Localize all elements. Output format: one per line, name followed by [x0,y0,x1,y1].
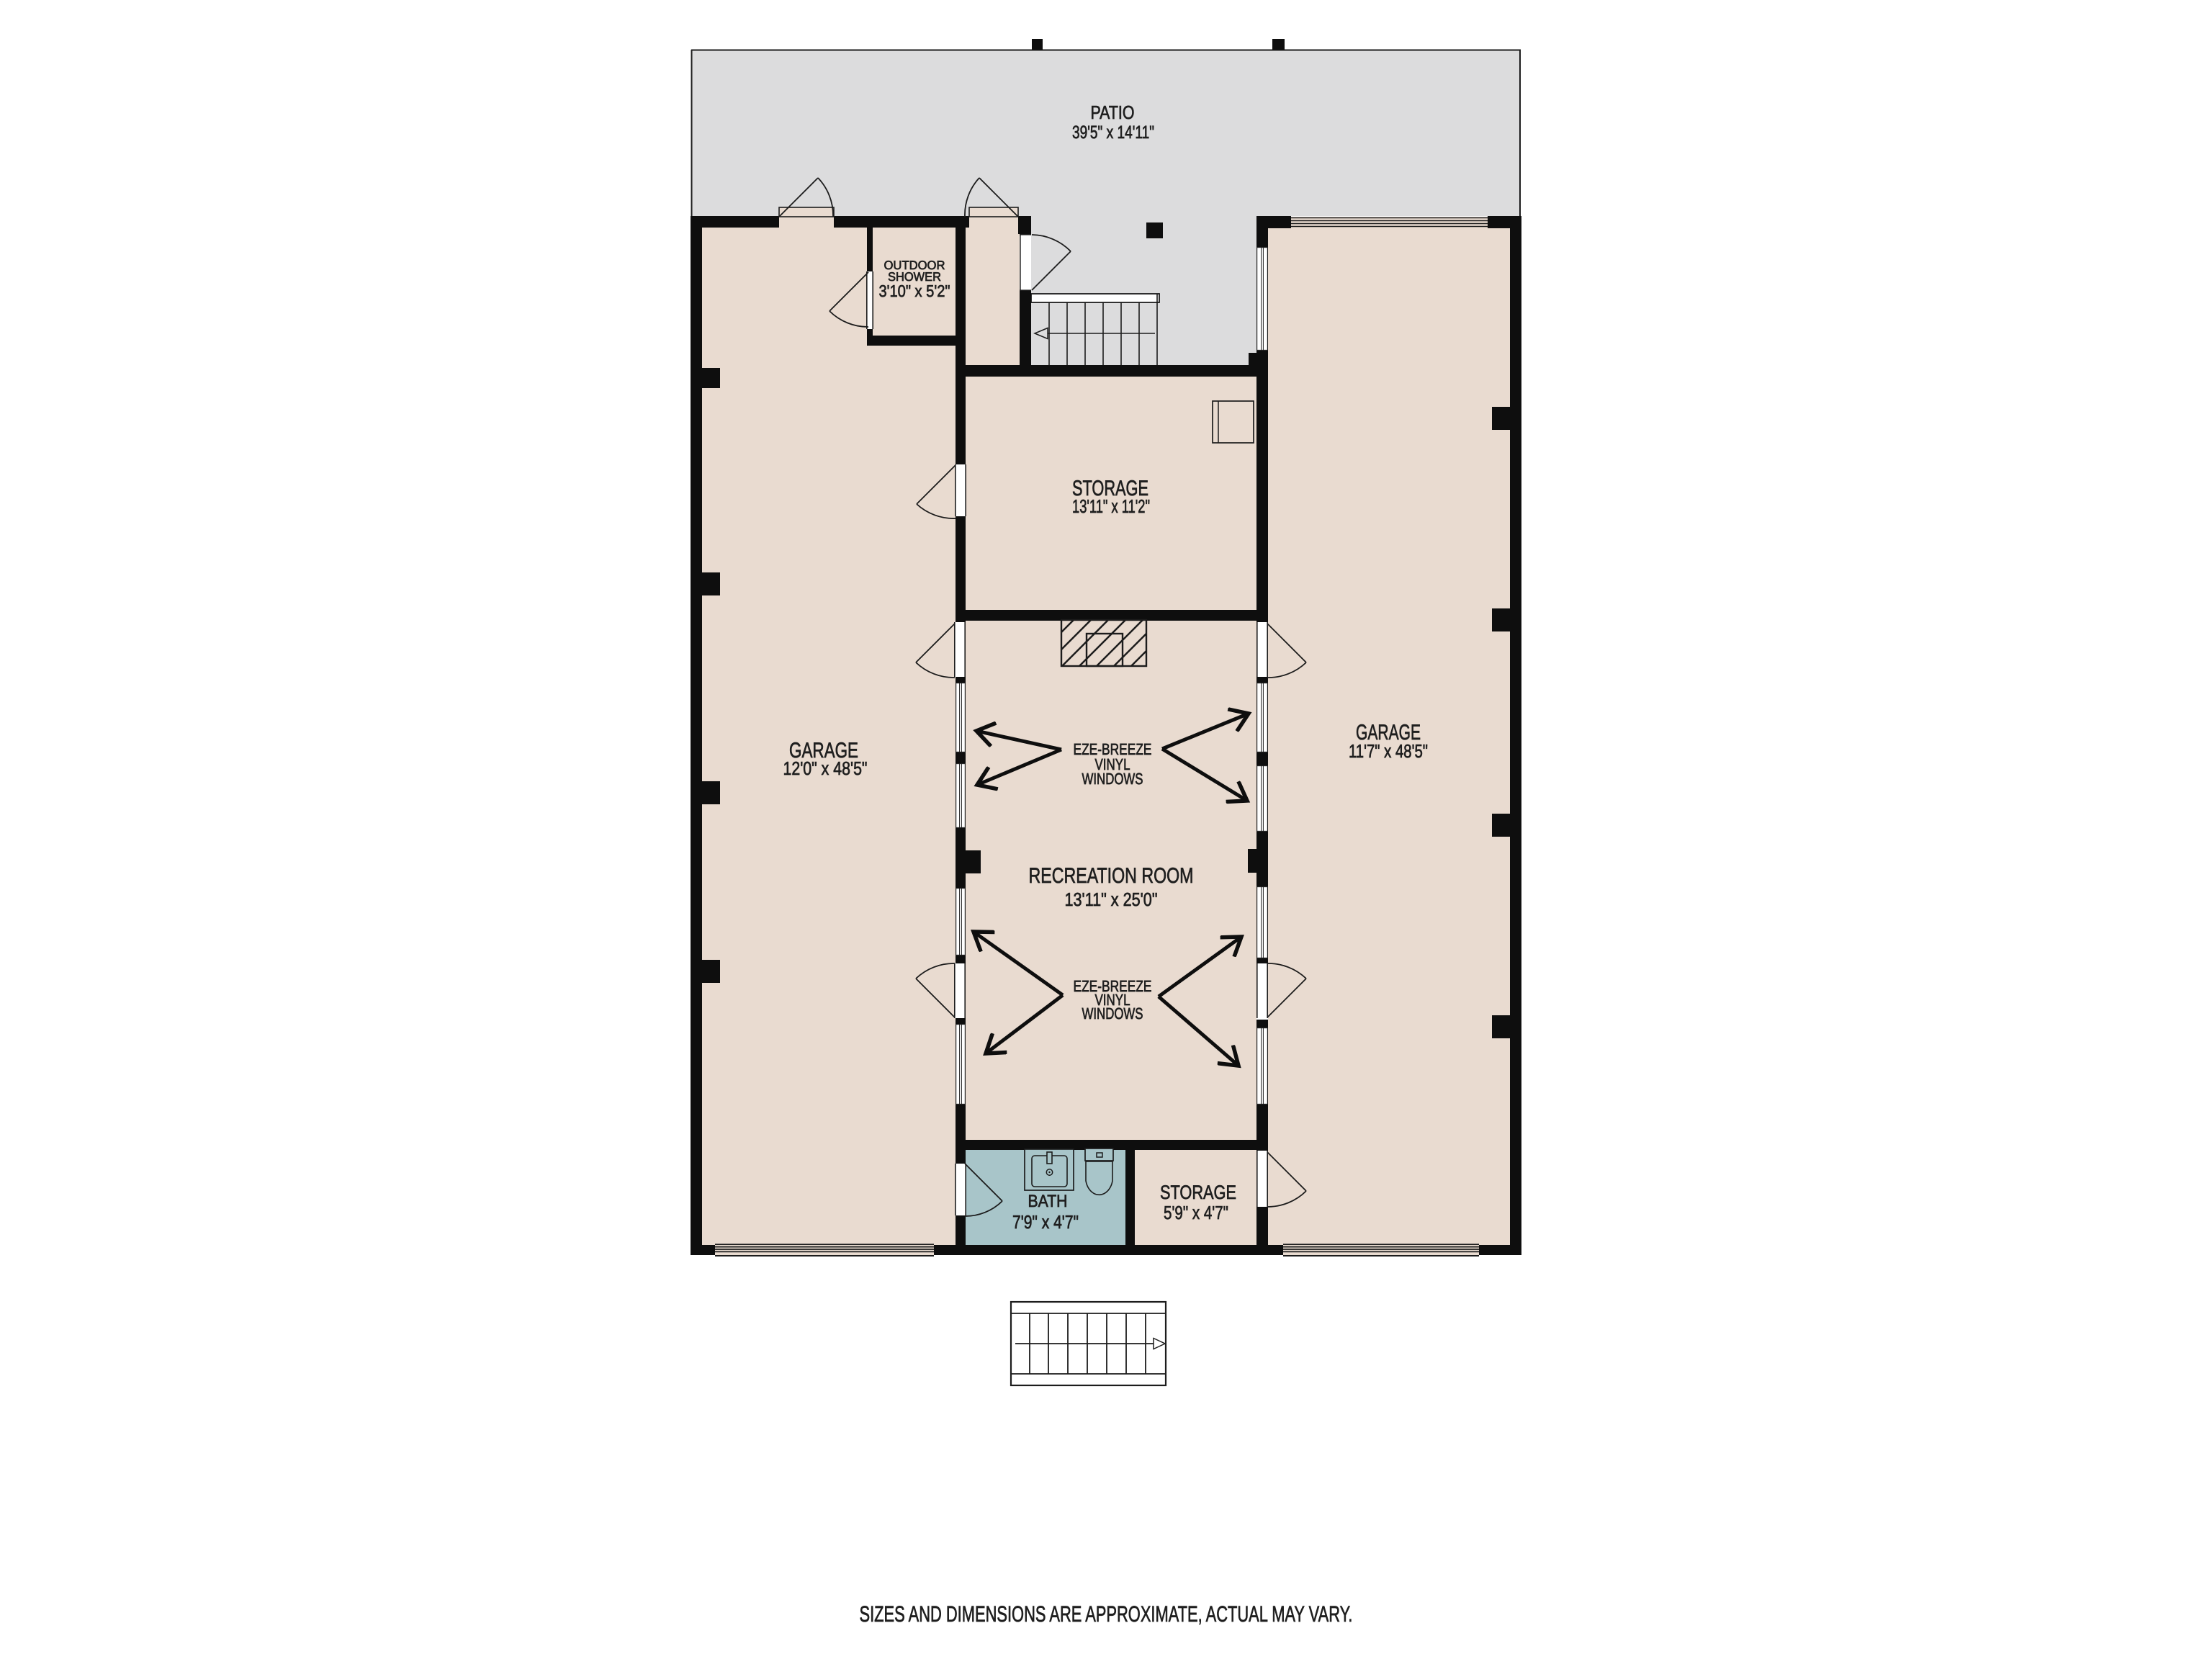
svg-text:7'9" x 4'7": 7'9" x 4'7" [1012,1211,1079,1233]
svg-text:39'5" x 14'11": 39'5" x 14'11" [1072,122,1154,143]
svg-text:3'10" x 5'2": 3'10" x 5'2" [879,282,950,300]
svg-text:SIZES AND DIMENSIONS ARE APPRO: SIZES AND DIMENSIONS ARE APPROXIMATE, AC… [860,1601,1353,1627]
svg-text:13'11" x 11'2": 13'11" x 11'2" [1072,495,1150,517]
svg-text:BATH: BATH [1028,1192,1068,1211]
svg-text:5'9" x 4'7": 5'9" x 4'7" [1164,1202,1228,1223]
svg-text:WINDOWS: WINDOWS [1082,770,1143,788]
svg-text:13'11" x 25'0": 13'11" x 25'0" [1065,889,1158,910]
svg-text:WINDOWS: WINDOWS [1082,1004,1143,1022]
svg-text:PATIO: PATIO [1091,102,1135,123]
svg-text:RECREATION ROOM: RECREATION ROOM [1029,864,1194,888]
svg-text:STORAGE: STORAGE [1160,1182,1236,1203]
svg-text:11'7" x 48'5": 11'7" x 48'5" [1349,740,1428,762]
svg-text:12'0" x 48'5": 12'0" x 48'5" [783,757,868,779]
